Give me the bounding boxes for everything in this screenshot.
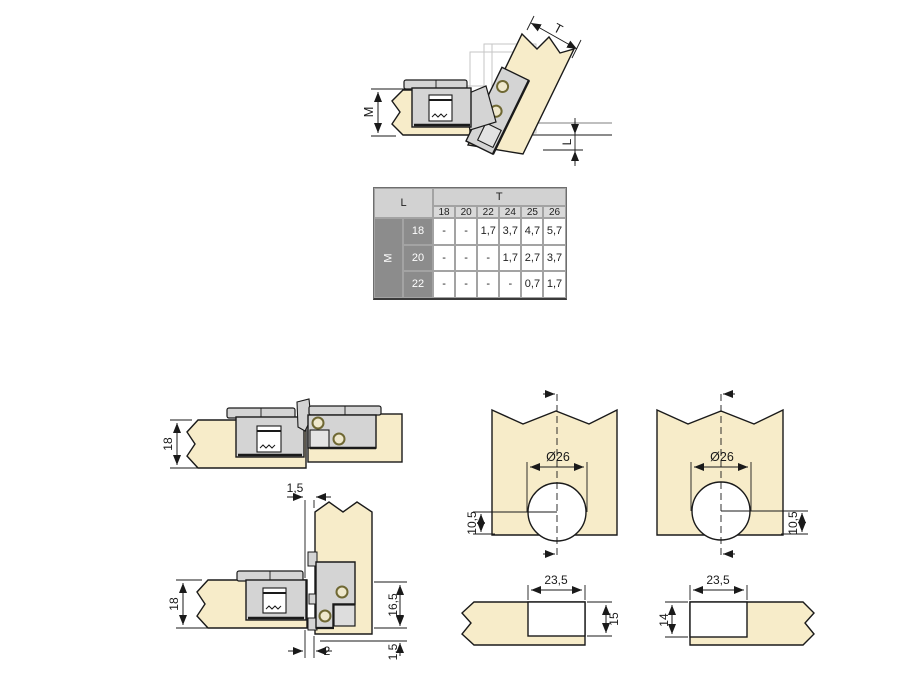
technical-sheet: M T L <box>0 0 903 685</box>
table-header-L: L <box>374 188 433 218</box>
dim-notch-depth-label: 14 <box>657 613 671 627</box>
dim-center-offset-label: 10,5 <box>465 511 479 535</box>
dim-notch-width-label: 23,5 <box>706 573 730 587</box>
drill-view-right: Ø26 10,5 <box>657 394 808 556</box>
dim-gap-top-label: 1,5 <box>287 481 304 495</box>
table-m-row: 22 <box>403 271 433 298</box>
table-header-M: M <box>374 218 403 298</box>
dim-diameter-label: Ø26 <box>710 450 734 464</box>
screw-icon <box>334 434 345 445</box>
notch-view-right: 23,5 14 <box>657 573 814 645</box>
adjustment-table: L T 18 20 22 24 25 26 M 18 - - 1,7 3,7 4… <box>373 187 567 300</box>
table-cell: 4,7 <box>521 218 543 245</box>
table-cell: 1,7 <box>543 271 565 298</box>
dim-L-label: L <box>560 138 574 145</box>
screw-icon <box>313 418 324 429</box>
table-m-row: 18 <box>403 218 433 245</box>
table-t-col: 26 <box>543 206 565 218</box>
dim-diameter-label: Ø26 <box>546 450 570 464</box>
flat-application-view: 18 <box>161 399 402 468</box>
table-cell: 3,7 <box>543 245 565 272</box>
dim-notch-depth: 15 <box>587 602 621 636</box>
table-cell: - <box>499 271 521 298</box>
table-cell: - <box>433 271 455 298</box>
hinge-knuckle <box>309 594 316 604</box>
dim-overlay: 16,5 <box>374 582 407 628</box>
table-cell: 1,7 <box>499 245 521 272</box>
table-cell: - <box>477 245 499 272</box>
dim-L: L <box>560 118 575 166</box>
hinge-plate-corner <box>316 562 355 628</box>
table-m-row: 20 <box>403 245 433 272</box>
table-cell: - <box>455 245 477 272</box>
table-cell: - <box>455 218 477 245</box>
dim-notch-depth-label: 15 <box>607 612 621 626</box>
table-cell: 3,7 <box>499 218 521 245</box>
table-t-col: 20 <box>455 206 477 218</box>
dim-notch-depth: 14 <box>657 602 688 637</box>
table-t-col: 22 <box>477 206 499 218</box>
notch-view-left: 23,5 15 <box>462 573 621 645</box>
corner-application-view: 1,5 18 16,5 1,5 2 <box>167 481 407 660</box>
table-cell: - <box>433 245 455 272</box>
dim-18-corner-label: 18 <box>167 597 181 611</box>
notch-cutout <box>528 602 585 636</box>
angled-application-view: M T L <box>361 16 612 166</box>
dim-notch-width: 23,5 <box>528 573 585 600</box>
table-t-col: 24 <box>499 206 521 218</box>
drill-view-left: Ø26 10,5 <box>465 394 617 556</box>
dim-center-offset-label: 10,5 <box>786 511 800 535</box>
table-header-T: T <box>433 188 566 206</box>
screw-icon <box>320 611 331 622</box>
table-t-col: 18 <box>433 206 455 218</box>
table-cell: 1,7 <box>477 218 499 245</box>
table-cell: 5,7 <box>543 218 565 245</box>
hinge-cup-flat <box>227 408 304 457</box>
dim-M-label: M <box>361 107 376 118</box>
hinge-cup <box>404 80 471 127</box>
hinge-plate-flat <box>308 406 381 448</box>
dim-notch-width-label: 23,5 <box>544 573 568 587</box>
dim-18-label: 18 <box>161 437 175 451</box>
dim-notch-width: 23,5 <box>690 573 747 600</box>
dim-bottom-gap-label: 2 <box>324 644 331 658</box>
screw-icon <box>337 587 348 598</box>
dim-overlay-label: 16,5 <box>386 593 400 617</box>
dim-bottom-reveal-label: 1,5 <box>386 643 400 660</box>
table-cell: - <box>477 271 499 298</box>
dim-T-label: T <box>551 20 565 37</box>
table-t-col: 25 <box>521 206 543 218</box>
table-cell: 2,7 <box>521 245 543 272</box>
table-cell: - <box>455 271 477 298</box>
table-cell: - <box>433 218 455 245</box>
hinge-technical-drawing: M T L <box>0 0 903 685</box>
table-cell: 0,7 <box>521 271 543 298</box>
hinge-cup-corner <box>237 571 306 620</box>
notch-cutout <box>690 602 747 637</box>
